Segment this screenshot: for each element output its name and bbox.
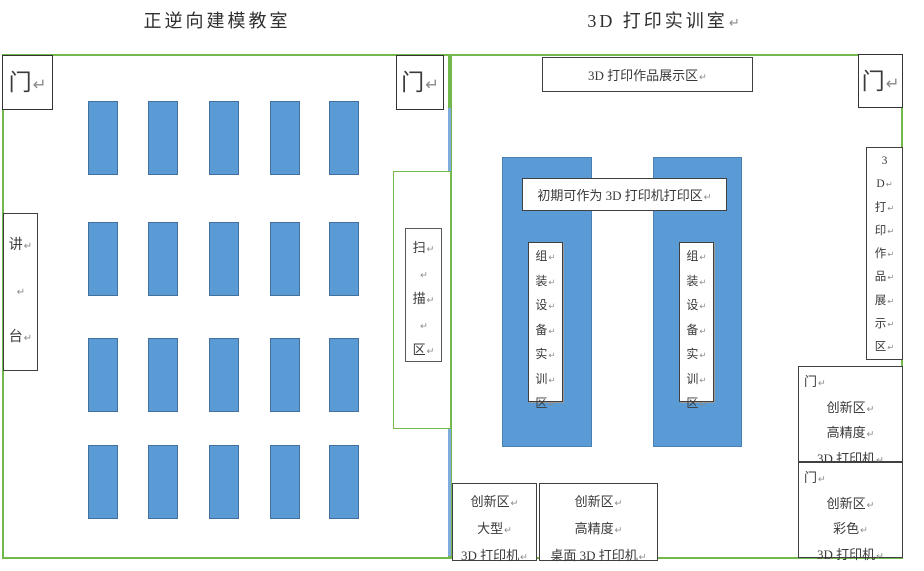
display-area-top-box: 3D 打印作品展示区↵: [542, 57, 753, 92]
desk: [209, 222, 239, 296]
desk: [88, 338, 118, 412]
display-area-right-box: 3D↵打↵印↵作↵品↵展↵示↵区↵: [866, 147, 903, 360]
desk: [88, 222, 118, 296]
desk: [270, 338, 300, 412]
desk: [148, 222, 178, 296]
floor-plan-canvas: 正逆向建模教室 3D 打印实训室↵ 门↵ 门↵ 讲↵↵台↵ 扫↵↵描↵↵区↵ 3…: [0, 0, 924, 571]
innovation-color-printer-box: 门↵创新区↵彩色↵3D 打印机↵: [798, 462, 903, 558]
desk: [88, 101, 118, 175]
desk: [209, 101, 239, 175]
desk: [329, 222, 359, 296]
desk: [270, 445, 300, 519]
desk: [329, 445, 359, 519]
desk: [329, 338, 359, 412]
desk: [209, 338, 239, 412]
assembly-training-left-box: 组↵装↵设↵备↵实↵训↵区↵: [528, 242, 563, 402]
desk: [329, 101, 359, 175]
desk: [148, 338, 178, 412]
innovation-large-printer-box: 创新区↵大型↵3D 打印机↵: [452, 483, 537, 561]
desk: [209, 445, 239, 519]
innovation-high-precision-printer-box: 门↵创新区↵高精度↵3D 打印机↵: [798, 366, 903, 462]
desk: [148, 445, 178, 519]
desk: [148, 101, 178, 175]
desk: [270, 222, 300, 296]
desk: [270, 101, 300, 175]
right-room-door: 门↵: [858, 54, 903, 108]
desk: [88, 445, 118, 519]
print-zone-label-box: 初期可作为 3D 打印机打印区↵: [522, 178, 727, 211]
innovation-desktop-printer-box: 创新区↵高精度↵桌面 3D 打印机↵: [539, 483, 658, 561]
assembly-training-right-box: 组↵装↵设↵备↵实↵训↵区↵: [679, 242, 714, 402]
